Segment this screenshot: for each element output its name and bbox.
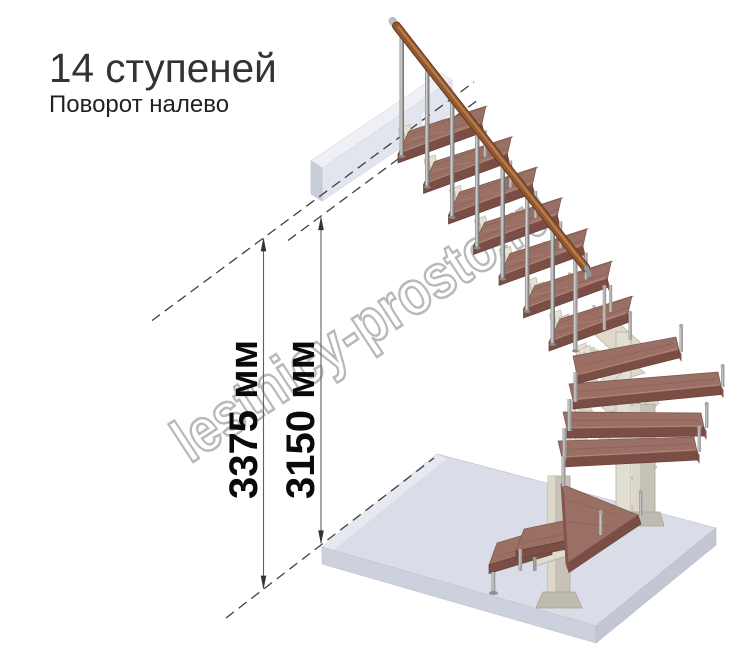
svg-text:Поворот налево: Поворот налево bbox=[49, 91, 229, 118]
svg-text:14 ступеней: 14 ступеней bbox=[49, 45, 277, 91]
svg-text:3375 мм: 3375 мм bbox=[222, 340, 266, 499]
svg-text:3150 мм: 3150 мм bbox=[279, 340, 323, 499]
